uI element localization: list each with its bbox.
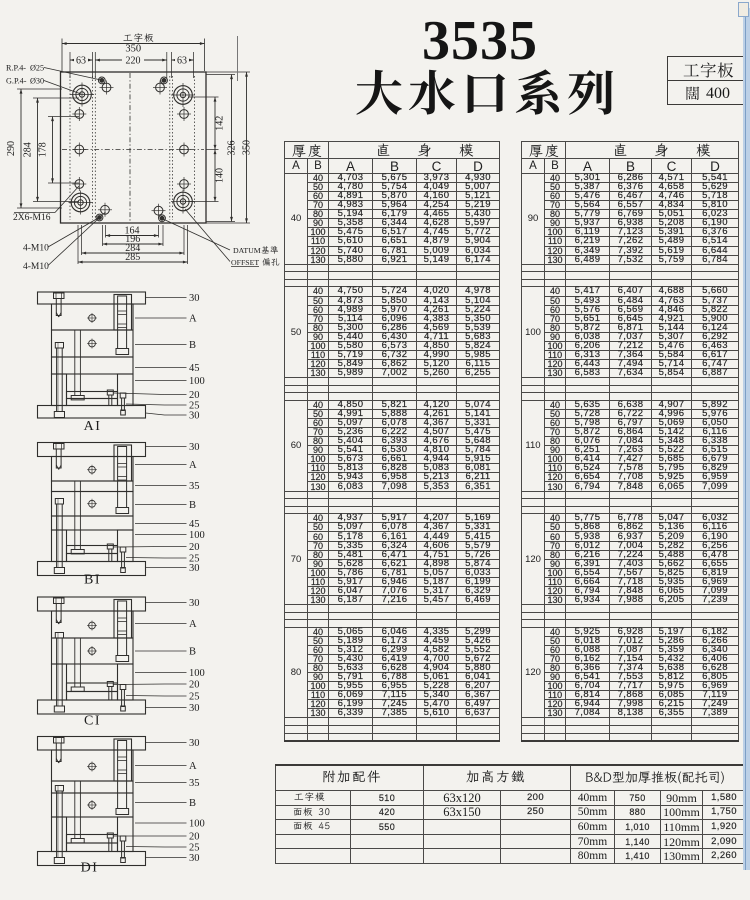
svg-text:A: A	[189, 314, 197, 325]
svg-text:100: 100	[189, 668, 205, 679]
svg-text:B: B	[189, 798, 196, 809]
svg-text:100: 100	[189, 819, 205, 830]
svg-text:BI: BI	[84, 573, 101, 588]
svg-text:30: 30	[189, 442, 200, 453]
svg-text:30: 30	[189, 598, 200, 609]
svg-text:350: 350	[242, 140, 253, 155]
svg-text:45: 45	[189, 519, 200, 530]
svg-text:35: 35	[189, 481, 200, 492]
svg-text:30: 30	[189, 293, 200, 304]
svg-text:100: 100	[189, 530, 205, 541]
svg-text:30: 30	[189, 563, 200, 574]
svg-text:30: 30	[189, 703, 200, 714]
svg-text:B: B	[189, 647, 196, 658]
svg-text:20: 20	[189, 832, 200, 843]
svg-text:A: A	[189, 761, 197, 772]
svg-text:B: B	[189, 340, 196, 351]
svg-text:35: 35	[189, 778, 200, 789]
svg-text:25: 25	[189, 692, 200, 703]
svg-text:B: B	[189, 500, 196, 511]
svg-text:100: 100	[189, 376, 205, 387]
svg-text:30: 30	[189, 853, 200, 864]
svg-text:DATUM: DATUM	[233, 246, 261, 255]
svg-text:20: 20	[189, 680, 200, 691]
svg-text:CI: CI	[84, 714, 101, 729]
svg-text:25: 25	[189, 843, 200, 854]
svg-text:20: 20	[189, 542, 200, 553]
svg-text:OFFSET: OFFSET	[231, 258, 259, 267]
svg-text:20: 20	[189, 390, 200, 401]
svg-text:30: 30	[189, 738, 200, 749]
svg-text:DI: DI	[81, 861, 99, 876]
svg-text:AI: AI	[84, 419, 102, 434]
svg-text:30: 30	[189, 411, 200, 422]
svg-text:45: 45	[189, 363, 200, 374]
svg-text:A: A	[189, 619, 197, 630]
svg-text:A: A	[189, 460, 197, 471]
